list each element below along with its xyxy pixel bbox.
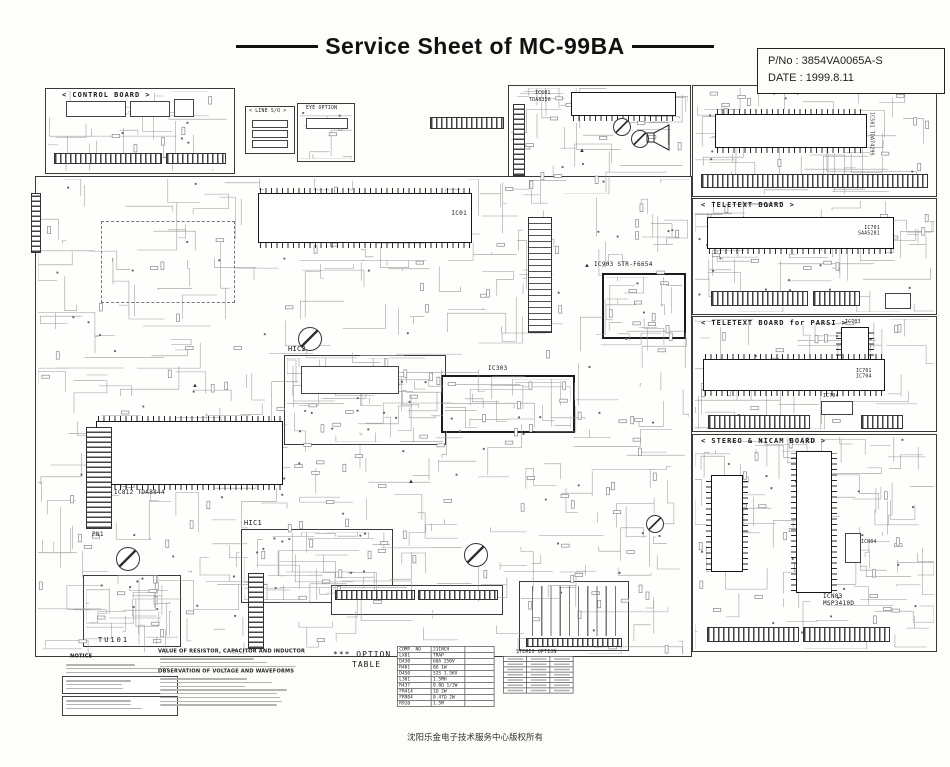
observation-notes [160, 676, 300, 708]
fine-print-line [160, 662, 267, 663]
line-so-label: < LINE S/O > [249, 108, 287, 114]
service-sheet: Service Sheet of MC-99BA P/No : 3854VA00… [0, 0, 950, 767]
sound-amp-dashed-area [101, 221, 235, 303]
audio-connector [513, 104, 525, 176]
ic601-part-label: TDA8356 [529, 97, 551, 103]
nicam-left-chip [711, 475, 743, 572]
eye-option-label: EYE OPTION [306, 105, 337, 111]
fine-print-line [66, 664, 135, 665]
eye-option-box: EYE OPTION [297, 103, 355, 162]
fine-print-line [66, 684, 122, 685]
stereo-nicam-board-label: < STEREO & NICAM BOARD > [701, 437, 826, 445]
option-table-cell [465, 700, 494, 706]
control-board-label: < CONTROL BOARD > [62, 91, 151, 99]
ic303-block [441, 375, 575, 433]
ic812-chip [96, 421, 283, 485]
left-edge-connector [31, 193, 41, 253]
ic701-chip: IC701SAA5281 [707, 217, 894, 249]
warning-triangle-icon: ▲ [408, 479, 414, 485]
fine-print-line [160, 686, 245, 687]
warning-triangle-icon: ▲ [579, 148, 585, 154]
av-stereo-board: < A/V STEREO BOARD > IC501 TDA7429S [692, 85, 937, 197]
option-table-row: R9101.5M [397, 700, 494, 706]
fine-print-line [66, 688, 123, 689]
fine-print-line [66, 700, 131, 701]
copyright-footer: 沈阳乐金电子技术服务中心版权所有 [0, 731, 950, 743]
ic903-ref-label: IC903 STR-F6654 [594, 261, 653, 268]
pn1-label: PN1 [92, 531, 104, 538]
ic903-circuitry [606, 277, 682, 335]
stereo-option-table [503, 656, 574, 694]
fine-print-line [160, 701, 282, 702]
control-connector [54, 153, 162, 164]
ic303-circuitry [445, 379, 571, 429]
fine-print-line [66, 704, 131, 705]
teletext-board-label: < TELETEXT BOARD > [701, 201, 795, 209]
teletext-connector [711, 291, 808, 306]
coil-symbol [646, 515, 664, 533]
teletext-sub-ic [885, 293, 911, 309]
tuner-circuitry [86, 578, 178, 644]
part-number: P/No : 3854VA0065A-S [768, 53, 944, 70]
control-connector [166, 153, 226, 164]
line-so-part [252, 120, 288, 128]
tuner-ref-label: TU101 [98, 636, 129, 644]
fine-print-line [160, 689, 287, 690]
fine-print-line [160, 678, 247, 679]
ic701-parsi-ref-label: IC701IC704 [856, 368, 872, 379]
ic501-chip [715, 114, 867, 148]
stereo-option-cell [503, 688, 526, 693]
title-rule-right [632, 45, 714, 48]
nicam-connector [803, 627, 890, 642]
ic01-chip: IC01 [258, 193, 472, 243]
wire-texture [606, 277, 682, 335]
icn03-ref-label: ICN03MSP3410D [823, 593, 854, 607]
speaker-icon [645, 122, 675, 152]
ic903-power-block [602, 273, 686, 339]
coil-symbol [116, 547, 140, 571]
line-so-part [252, 130, 288, 138]
ic601-ref-label: IC601 [535, 90, 551, 96]
warning-triangle-icon: ▲ [192, 383, 198, 389]
ic812-ref-label: IC812 TDA8844 [114, 489, 165, 496]
icn03-chip [796, 451, 832, 593]
coil-symbol [613, 118, 631, 136]
line-so-box: < LINE S/O > [245, 106, 295, 154]
part-info-box: P/No : 3854VA0065A-S DATE : 1999.8.11 [757, 48, 945, 94]
fine-print-line [160, 682, 272, 683]
ic704-ref-label: IC704 [823, 393, 839, 399]
fine-print-line [66, 680, 131, 681]
tuner-pin-column [248, 573, 264, 649]
top-pin-header [430, 117, 504, 129]
stereo-option-cell [527, 688, 550, 693]
stereo-nicam-board: < STEREO & NICAM BOARD > ICN03MSP3410D I… [692, 434, 937, 652]
wire-texture [300, 106, 352, 159]
control-key-block [66, 101, 126, 117]
sheet-date: DATE : 1999.8.11 [768, 70, 944, 87]
hic2-substrate [301, 366, 399, 394]
resistor-bank-block [519, 581, 629, 651]
ic704-chip [821, 401, 853, 415]
stereo-option-row [503, 688, 573, 693]
hic1-ref-label: HIC1 [244, 519, 262, 527]
coil-symbol [464, 543, 488, 567]
teletext-parsi-connector [861, 415, 903, 429]
main-chassis-board: IC01 ▲ IC903 STR-F6654 HIC2 IC303 IC812 … [35, 176, 692, 657]
line-so-part [252, 140, 288, 148]
fine-print-line [160, 666, 296, 667]
eye-option-circuitry [300, 106, 352, 159]
fine-print-line [160, 704, 277, 705]
ic303-ref-label: IC303 [488, 365, 508, 372]
ic701-parsi-chip: IC701IC704 [703, 359, 885, 391]
resistor-columns [524, 586, 624, 636]
hic2-module [284, 355, 446, 445]
fine-print-line [160, 658, 254, 659]
fine-print-line [66, 672, 160, 673]
warning-triangle-icon: ▲ [584, 263, 590, 269]
hic2-ref-label: HIC2 [288, 345, 306, 353]
tuner-block: TU101 [83, 575, 181, 647]
wire-texture [86, 578, 178, 644]
value-heading: VALUE OF RESISTOR, CAPACITOR AND INDUCTO… [158, 648, 305, 654]
option-table-label2: TABLE [352, 660, 381, 669]
control-ic-block [174, 99, 194, 117]
teletext-parsi-board: < TELETEXT BOARD for PARSI > IC703 IC701… [692, 316, 937, 432]
control-key-block [130, 101, 170, 117]
av-stereo-connector [701, 174, 928, 188]
nicam-connector [707, 627, 799, 642]
eye-option-part [306, 118, 348, 129]
teletext-parsi-board-label: < TELETEXT BOARD for PARSI > [701, 319, 847, 327]
page-title: Service Sheet of MC-99BA [325, 33, 625, 60]
stereo-option-cell [550, 688, 573, 693]
option-table-cell: 1.5M [431, 700, 465, 706]
ic701-ref-label: IC701SAA5281 [858, 225, 880, 236]
ic501-ref-label: IC501 TDA7429S [869, 112, 875, 141]
ic01-ref-label: IC01 [451, 210, 467, 217]
wire-texture [445, 379, 571, 429]
option-table-cell: R910 [397, 700, 431, 706]
fine-print-line [66, 708, 142, 709]
teletext-board: < TELETEXT BOARD > IC701SAA5281 [692, 198, 937, 315]
option-table-label1: *** OPTION [333, 650, 391, 659]
stereo-option-title: STEREO OPTION [516, 649, 557, 655]
teletext-connector [813, 291, 860, 306]
notice-heading: NOTICE [70, 653, 92, 659]
icn04-chip [845, 533, 861, 563]
fine-print-line [160, 693, 277, 694]
pn1-connector [86, 427, 112, 529]
observation-heading: OBSERVATION OF VOLTAGE AND WAVEFORMS [158, 668, 294, 674]
teletext-parsi-connector [708, 415, 810, 429]
fine-print-line [66, 668, 169, 669]
control-board: < CONTROL BOARD > [45, 88, 235, 174]
icn04-ref-label: ICN04 [861, 539, 877, 545]
ic703-ref-label: IC703 [845, 319, 861, 325]
title-rule-left [236, 45, 318, 48]
fine-print-line [160, 697, 280, 698]
transformer-symbol [528, 217, 552, 333]
option-table: COMP. NO21INCHLX01TRAPD43060A 250VR4010Ω… [397, 646, 495, 707]
